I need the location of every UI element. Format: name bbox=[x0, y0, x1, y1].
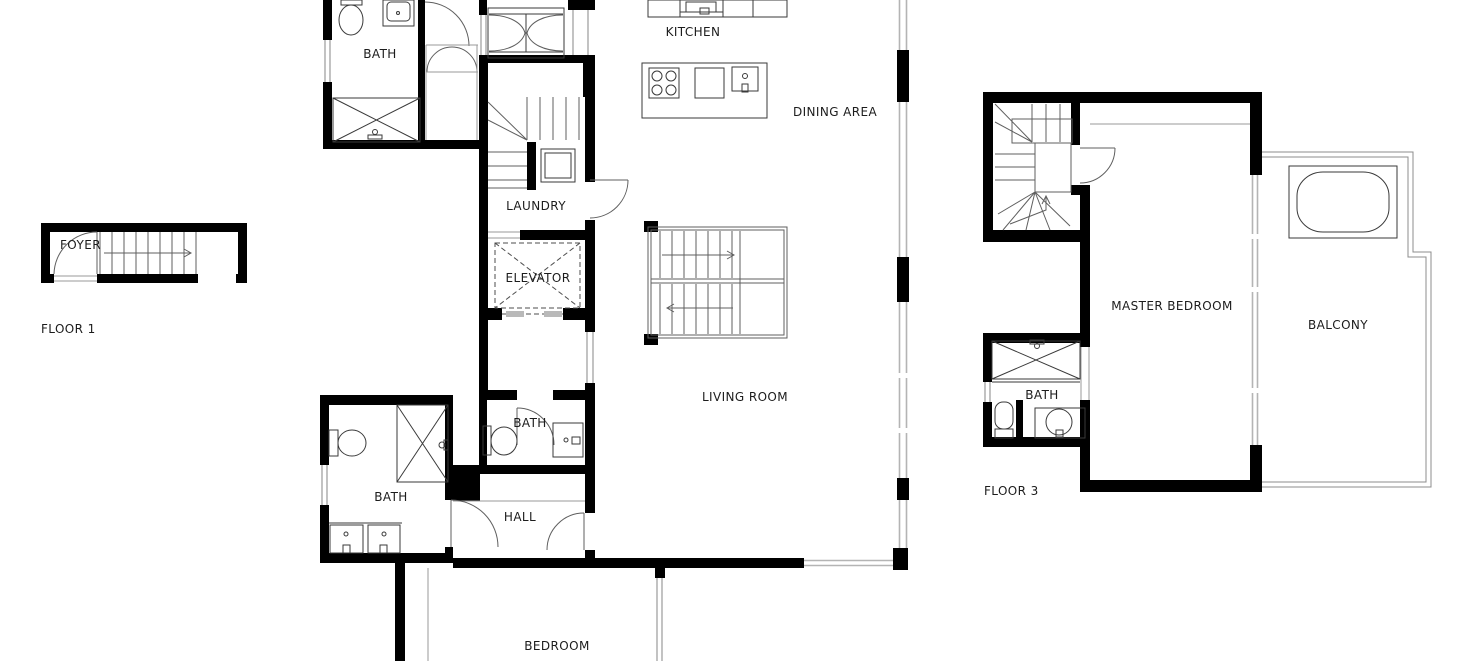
label-laundry: LAUNDRY bbox=[506, 199, 566, 213]
bathroom-floor3: BATH bbox=[992, 340, 1085, 438]
door-swing bbox=[547, 513, 584, 550]
prep-sink-icon bbox=[732, 67, 758, 92]
label-elevator: ELEVATOR bbox=[506, 271, 571, 285]
label-master-bedroom: MASTER BEDROOM bbox=[1111, 299, 1232, 313]
stove-icon bbox=[649, 68, 679, 98]
bathroom-upper: BATH bbox=[333, 0, 420, 142]
shower-icon bbox=[333, 98, 420, 142]
shower-icon bbox=[992, 340, 1080, 382]
floor-plan-canvas: FOYER FLOOR 1 bbox=[0, 0, 1476, 661]
label-kitchen: KITCHEN bbox=[666, 25, 721, 39]
elevator-door-panel bbox=[506, 311, 524, 317]
label-bedroom: BEDROOM bbox=[524, 639, 589, 653]
main-staircase bbox=[648, 227, 787, 338]
sink-icon bbox=[1035, 408, 1085, 438]
label-floor3: FLOOR 3 bbox=[984, 484, 1039, 498]
kitchen-counter bbox=[648, 0, 787, 17]
label-balcony: BALCONY bbox=[1308, 318, 1368, 332]
door-swing bbox=[1080, 148, 1115, 183]
label-bath-lower: BATH bbox=[374, 490, 407, 504]
stair-direction-arrow bbox=[667, 304, 733, 312]
closet-doors bbox=[425, 2, 478, 140]
bedroom-area: BEDROOM bbox=[428, 568, 590, 661]
kitchen-island bbox=[642, 63, 767, 118]
label-living-room: LIVING ROOM bbox=[702, 390, 788, 404]
label-floor1: FLOOR 1 bbox=[41, 322, 96, 336]
door-swing bbox=[451, 500, 498, 547]
hall-area: HALL bbox=[451, 500, 585, 550]
floor-plan-svg: FOYER FLOOR 1 bbox=[0, 0, 1476, 661]
floor3-plan: MASTER BEDROOM BATH bbox=[983, 92, 1431, 498]
label-hall: HALL bbox=[504, 510, 536, 524]
label-bath-mid: BATH bbox=[513, 416, 546, 430]
elevator-door-panel bbox=[544, 311, 562, 317]
shower-icon bbox=[397, 405, 448, 482]
double-sink-vanity bbox=[329, 523, 402, 553]
winder-staircase bbox=[995, 104, 1072, 230]
floor2-plan: BATH bbox=[320, 0, 910, 661]
washer-icon bbox=[541, 149, 575, 182]
laundry-room: LAUNDRY bbox=[488, 149, 628, 238]
stair-direction-arrow bbox=[1010, 196, 1050, 224]
stair-direction-arrow bbox=[662, 251, 734, 259]
sink-icon bbox=[553, 423, 583, 457]
staircase bbox=[100, 232, 196, 274]
elevator-shaft: ELEVATOR bbox=[495, 243, 580, 317]
door-threshold bbox=[54, 276, 97, 281]
toilet-icon bbox=[329, 430, 366, 456]
master-bedroom-area: MASTER BEDROOM bbox=[1090, 124, 1250, 313]
floor1-plan: FOYER FLOOR 1 bbox=[41, 223, 247, 336]
toilet-icon bbox=[483, 426, 517, 455]
sink-icon bbox=[383, 0, 414, 26]
kitchen-area: KITCHEN DINING AREA bbox=[642, 0, 877, 119]
door-swing bbox=[590, 180, 628, 218]
wardrobe-bifold-doors bbox=[488, 8, 564, 58]
wall bbox=[983, 92, 1262, 492]
island-sink bbox=[695, 68, 724, 98]
label-bath-floor3: BATH bbox=[1025, 388, 1058, 402]
wall bbox=[320, 0, 909, 661]
label-foyer: FOYER bbox=[60, 238, 101, 252]
balcony-area: BALCONY bbox=[1262, 152, 1431, 487]
bathroom-lower: BATH bbox=[329, 405, 448, 553]
label-dining-area: DINING AREA bbox=[793, 105, 878, 119]
toilet-icon bbox=[339, 0, 363, 35]
label-bath-upper: BATH bbox=[363, 47, 396, 61]
hot-tub-icon bbox=[1289, 166, 1397, 238]
bathroom-mid: BATH bbox=[483, 408, 583, 457]
toilet-icon bbox=[995, 402, 1013, 438]
